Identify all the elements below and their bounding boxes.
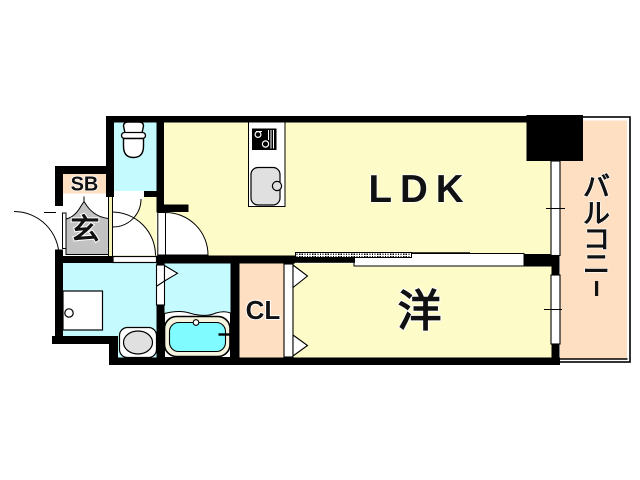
svg-text:玄: 玄 — [70, 212, 99, 246]
svg-text:バ: バ — [583, 172, 610, 202]
svg-text:洋: 洋 — [398, 287, 442, 336]
svg-text:ニ: ニ — [583, 250, 610, 280]
svg-text:CL: CL — [246, 295, 281, 325]
svg-text:LDK: LDK — [368, 168, 471, 211]
svg-text:SB: SB — [71, 174, 99, 196]
